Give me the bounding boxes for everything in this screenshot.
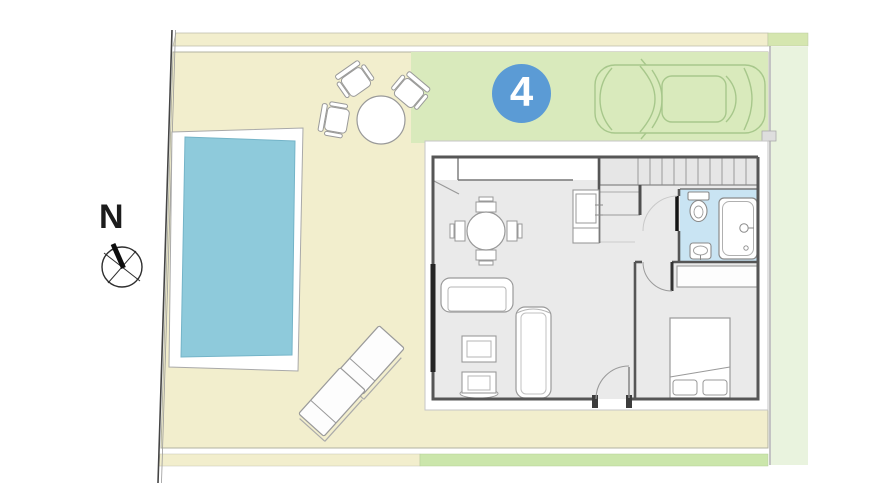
dining-table xyxy=(467,212,505,250)
entry-step xyxy=(762,131,776,141)
bottom-hedge-strip xyxy=(420,454,768,466)
house-floor-plan xyxy=(425,131,776,410)
unit-number: 4 xyxy=(510,71,533,116)
pillow xyxy=(703,380,727,395)
kitchen-sink xyxy=(576,194,596,223)
side-walkway-strip xyxy=(771,47,808,465)
top-border-strip xyxy=(173,33,768,46)
bottom-border-strip xyxy=(159,454,420,466)
outdoor-table xyxy=(357,96,405,144)
top-border-strip-green xyxy=(768,33,808,46)
pillow xyxy=(673,380,697,395)
door-jamb xyxy=(592,395,598,408)
swimming-pool xyxy=(169,128,303,371)
site-plan-drawing xyxy=(0,0,890,500)
tub-drain xyxy=(740,224,748,232)
unit-badge: 4 xyxy=(492,64,551,123)
sofa xyxy=(441,278,513,312)
wardrobe xyxy=(677,266,757,287)
toilet-tank xyxy=(688,192,709,200)
site-plan: N 4 xyxy=(0,0,890,500)
pool-water xyxy=(181,137,295,357)
north-label: N xyxy=(99,200,124,234)
entry-strip xyxy=(434,157,599,180)
north-arrow xyxy=(102,244,142,287)
